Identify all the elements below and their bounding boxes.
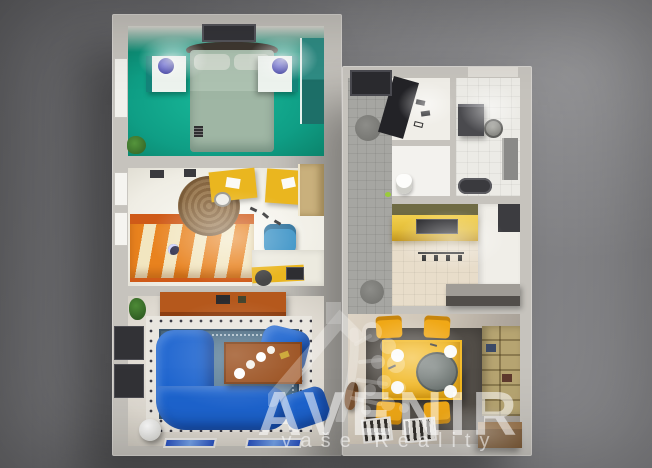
watermark-tagline-text: vaše Reality — [230, 430, 550, 453]
floorplan-scene: AVENIR vaše Reality — [0, 0, 652, 468]
watermark: AVENIR vaše Reality — [0, 0, 652, 468]
